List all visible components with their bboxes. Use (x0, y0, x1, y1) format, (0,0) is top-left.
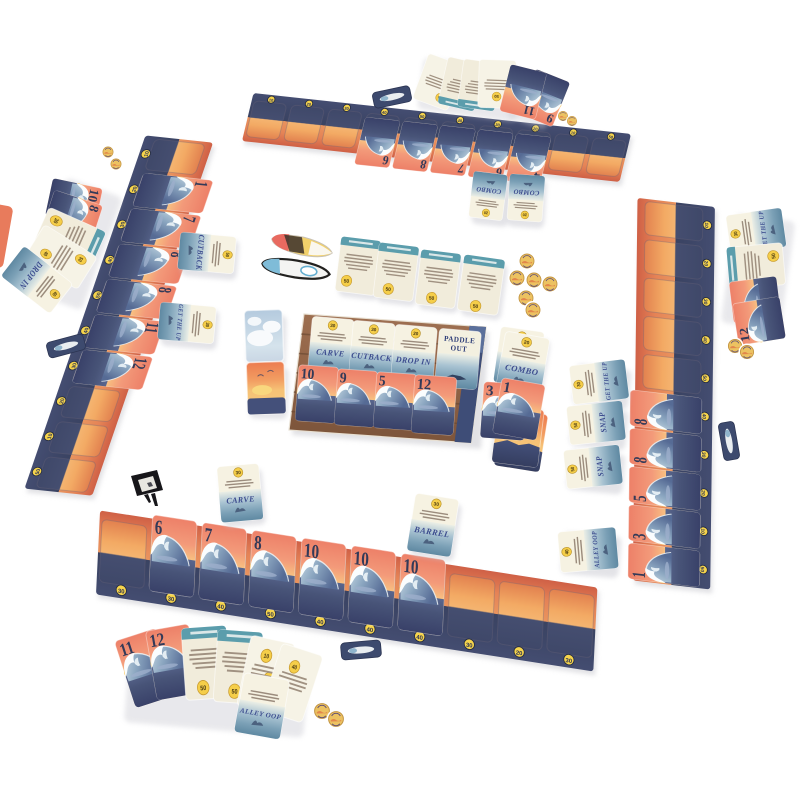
svg-text:20: 20 (523, 212, 528, 217)
svg-text:40: 40 (564, 549, 570, 555)
svg-text:20: 20 (516, 650, 524, 657)
svg-text:OUT: OUT (450, 343, 467, 354)
svg-text:10: 10 (300, 366, 315, 383)
svg-text:30: 30 (565, 658, 573, 665)
svg-text:3: 3 (485, 383, 494, 399)
svg-text:6: 6 (154, 515, 163, 539)
svg-text:7: 7 (204, 523, 213, 547)
svg-text:40: 40 (702, 337, 708, 343)
svg-text:30: 30 (167, 596, 175, 603)
svg-text:20: 20 (484, 210, 489, 215)
svg-text:50: 50 (200, 685, 207, 692)
svg-text:50: 50 (771, 253, 778, 259)
svg-text:5: 5 (378, 373, 386, 390)
svg-text:10: 10 (703, 222, 709, 228)
svg-text:50: 50 (267, 612, 275, 619)
svg-text:30: 30 (702, 299, 708, 305)
svg-text:10: 10 (403, 554, 419, 579)
svg-text:12: 12 (127, 357, 151, 371)
svg-text:20: 20 (413, 331, 419, 337)
svg-text:10: 10 (303, 538, 319, 563)
svg-text:40: 40 (366, 627, 374, 634)
svg-text:9: 9 (339, 370, 347, 387)
svg-text:10: 10 (353, 546, 369, 571)
svg-text:40: 40 (416, 635, 424, 642)
svg-text:30: 30 (371, 327, 377, 333)
svg-text:30: 30 (235, 470, 241, 476)
svg-text:50: 50 (231, 689, 238, 696)
svg-text:40: 40 (317, 619, 325, 626)
svg-text:30: 30 (330, 323, 336, 329)
svg-text:12: 12 (416, 376, 431, 393)
svg-text:50: 50 (472, 303, 478, 310)
svg-text:50: 50 (701, 375, 707, 381)
svg-text:30: 30 (118, 589, 126, 596)
svg-text:8: 8 (254, 531, 263, 555)
svg-text:30: 30 (466, 643, 474, 650)
svg-text:40: 40 (217, 604, 225, 611)
svg-text:20: 20 (702, 260, 708, 266)
